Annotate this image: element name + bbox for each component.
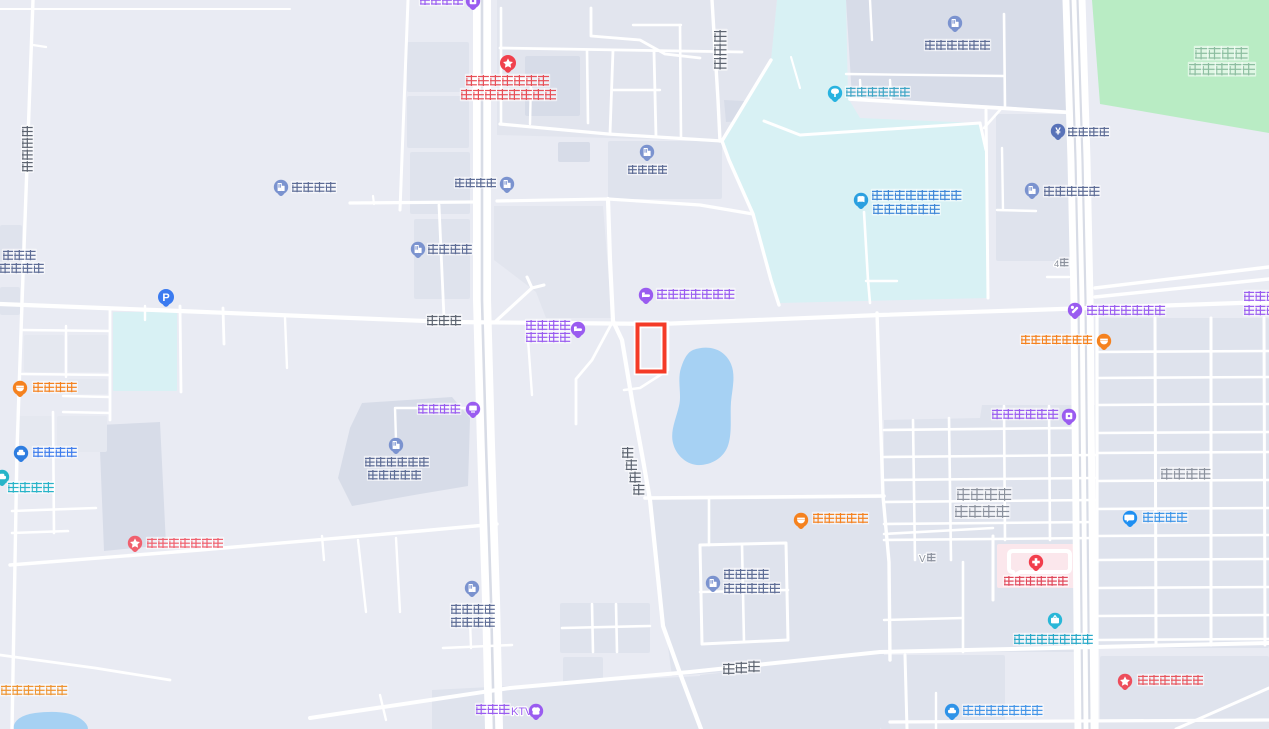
svg-text:4: 4 [1054,259,1059,270]
svg-text:P: P [162,292,169,304]
svg-text:V: V [919,554,926,565]
svg-text:¥: ¥ [1055,127,1061,138]
